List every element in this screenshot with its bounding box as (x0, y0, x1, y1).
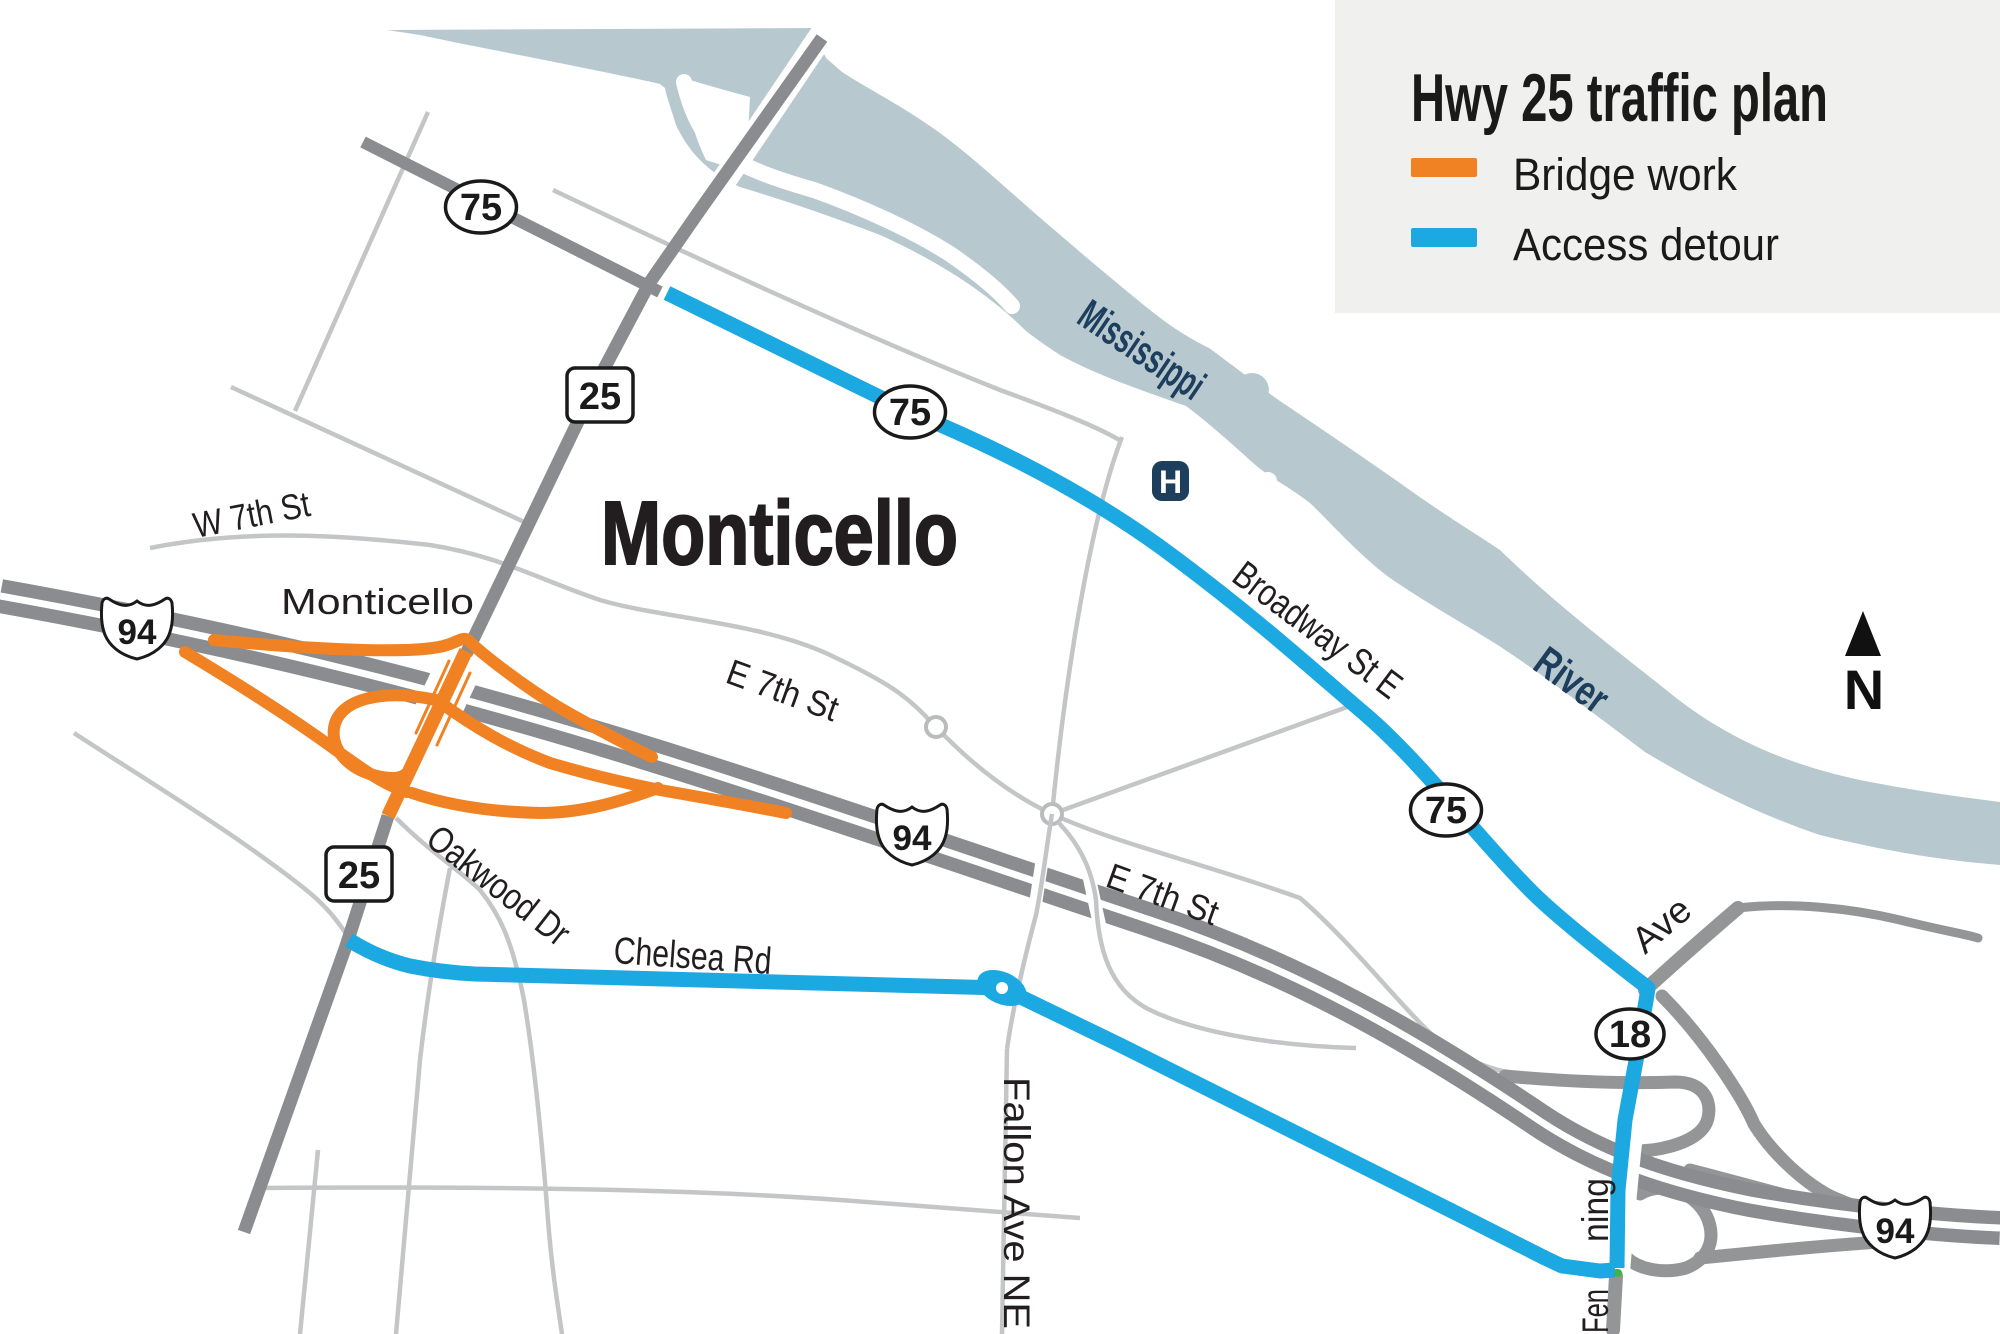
svg-text:25: 25 (338, 855, 380, 897)
svg-text:75: 75 (460, 187, 502, 229)
svg-text:18: 18 (1609, 1014, 1651, 1056)
svg-text:Monticello: Monticello (281, 581, 474, 622)
svg-text:Monticello: Monticello (601, 484, 958, 584)
svg-text:94: 94 (893, 819, 932, 858)
svg-text:Bridge work: Bridge work (1513, 149, 1737, 200)
svg-text:94: 94 (118, 613, 157, 652)
svg-text:Access detour: Access detour (1513, 219, 1779, 270)
svg-text:ning: ning (1575, 1178, 1616, 1242)
svg-text:25: 25 (579, 376, 621, 418)
svg-text:75: 75 (889, 392, 931, 434)
svg-text:Fen: Fen (1575, 1289, 1616, 1333)
svg-text:N: N (1844, 658, 1884, 721)
svg-text:H: H (1159, 464, 1182, 500)
svg-text:75: 75 (1425, 790, 1467, 832)
svg-text:Hwy 25 traffic plan: Hwy 25 traffic plan (1411, 60, 1828, 136)
svg-text:94: 94 (1876, 1212, 1915, 1251)
svg-text:Fallon Ave NE: Fallon Ave NE (996, 1077, 1037, 1329)
